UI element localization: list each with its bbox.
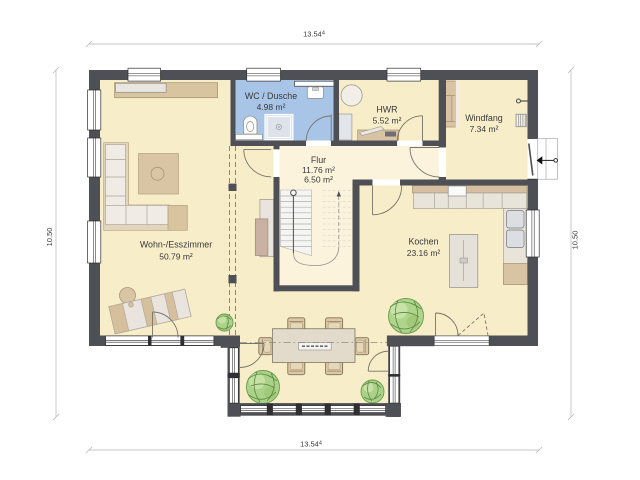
svg-text:HWR: HWR — [376, 105, 397, 115]
svg-text:11.76 m²: 11.76 m² — [302, 165, 335, 175]
svg-text:10.50: 10.50 — [571, 231, 580, 250]
svg-text:WC / Dusche: WC / Dusche — [245, 91, 297, 101]
svg-text:Kochen: Kochen — [408, 237, 438, 247]
svg-text:13.544: 13.544 — [303, 30, 325, 39]
svg-text:4.98 m²: 4.98 m² — [257, 102, 286, 112]
svg-text:7.34 m²: 7.34 m² — [470, 124, 499, 134]
svg-text:13.544: 13.544 — [300, 440, 322, 449]
svg-text:10.50: 10.50 — [45, 228, 54, 247]
svg-text:Wohn-/Esszimmer: Wohn-/Esszimmer — [140, 240, 212, 250]
svg-text:6.50 m²: 6.50 m² — [304, 175, 333, 185]
svg-text:Windfang: Windfang — [465, 113, 503, 123]
svg-text:23.16 m²: 23.16 m² — [407, 248, 441, 258]
svg-text:5.52 m²: 5.52 m² — [373, 116, 402, 126]
svg-text:50.79 m²: 50.79 m² — [159, 252, 193, 262]
svg-text:Flur: Flur — [311, 155, 326, 165]
